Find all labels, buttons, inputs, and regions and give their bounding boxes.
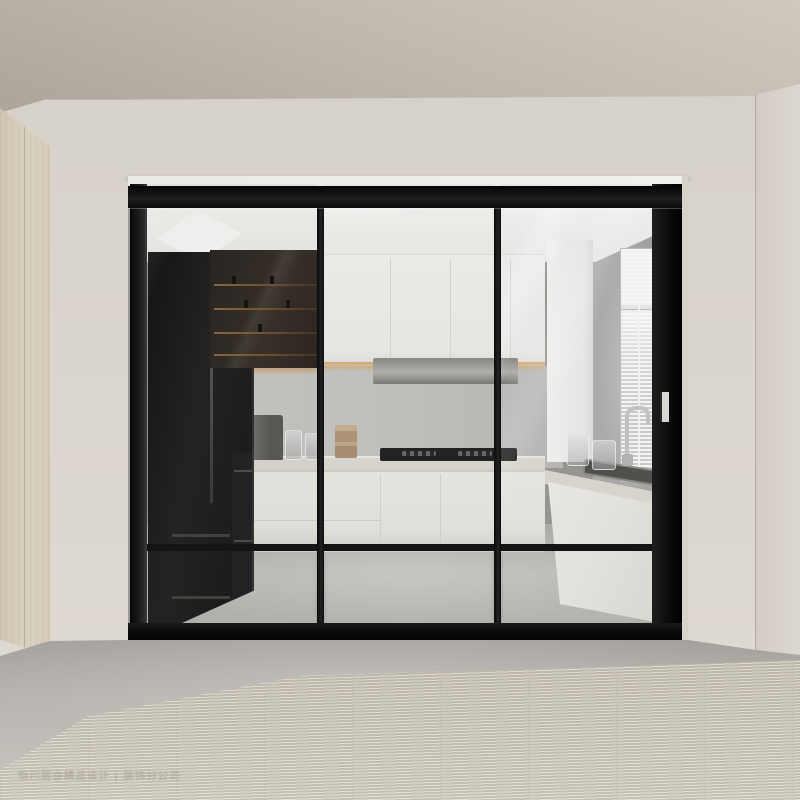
watermark-text: 怡川居@精品设计 | 装饰分公司 <box>18 768 238 783</box>
doorway-kitchen <box>128 176 688 646</box>
glass-panel-1 <box>130 184 318 642</box>
wardrobe-wood-panel <box>0 108 50 656</box>
door-top-track <box>128 186 688 208</box>
sliding-door-stile[interactable] <box>652 184 682 646</box>
door-mullion-1 <box>317 186 324 642</box>
kitchen-photo: 怡川居@精品设计 | 装饰分公司 <box>0 0 800 800</box>
glass-panel-3 <box>501 184 654 642</box>
door-jamb-right <box>682 176 688 646</box>
wardrobe-seam <box>24 108 25 656</box>
glass-panel-2 <box>324 184 494 642</box>
door-mullion-2 <box>494 186 501 642</box>
door-bottom-rail <box>130 544 684 551</box>
door-bottom-track <box>128 623 688 640</box>
door-handle[interactable] <box>660 392 669 422</box>
right-wall <box>755 84 800 668</box>
door-frame-left <box>130 184 147 644</box>
